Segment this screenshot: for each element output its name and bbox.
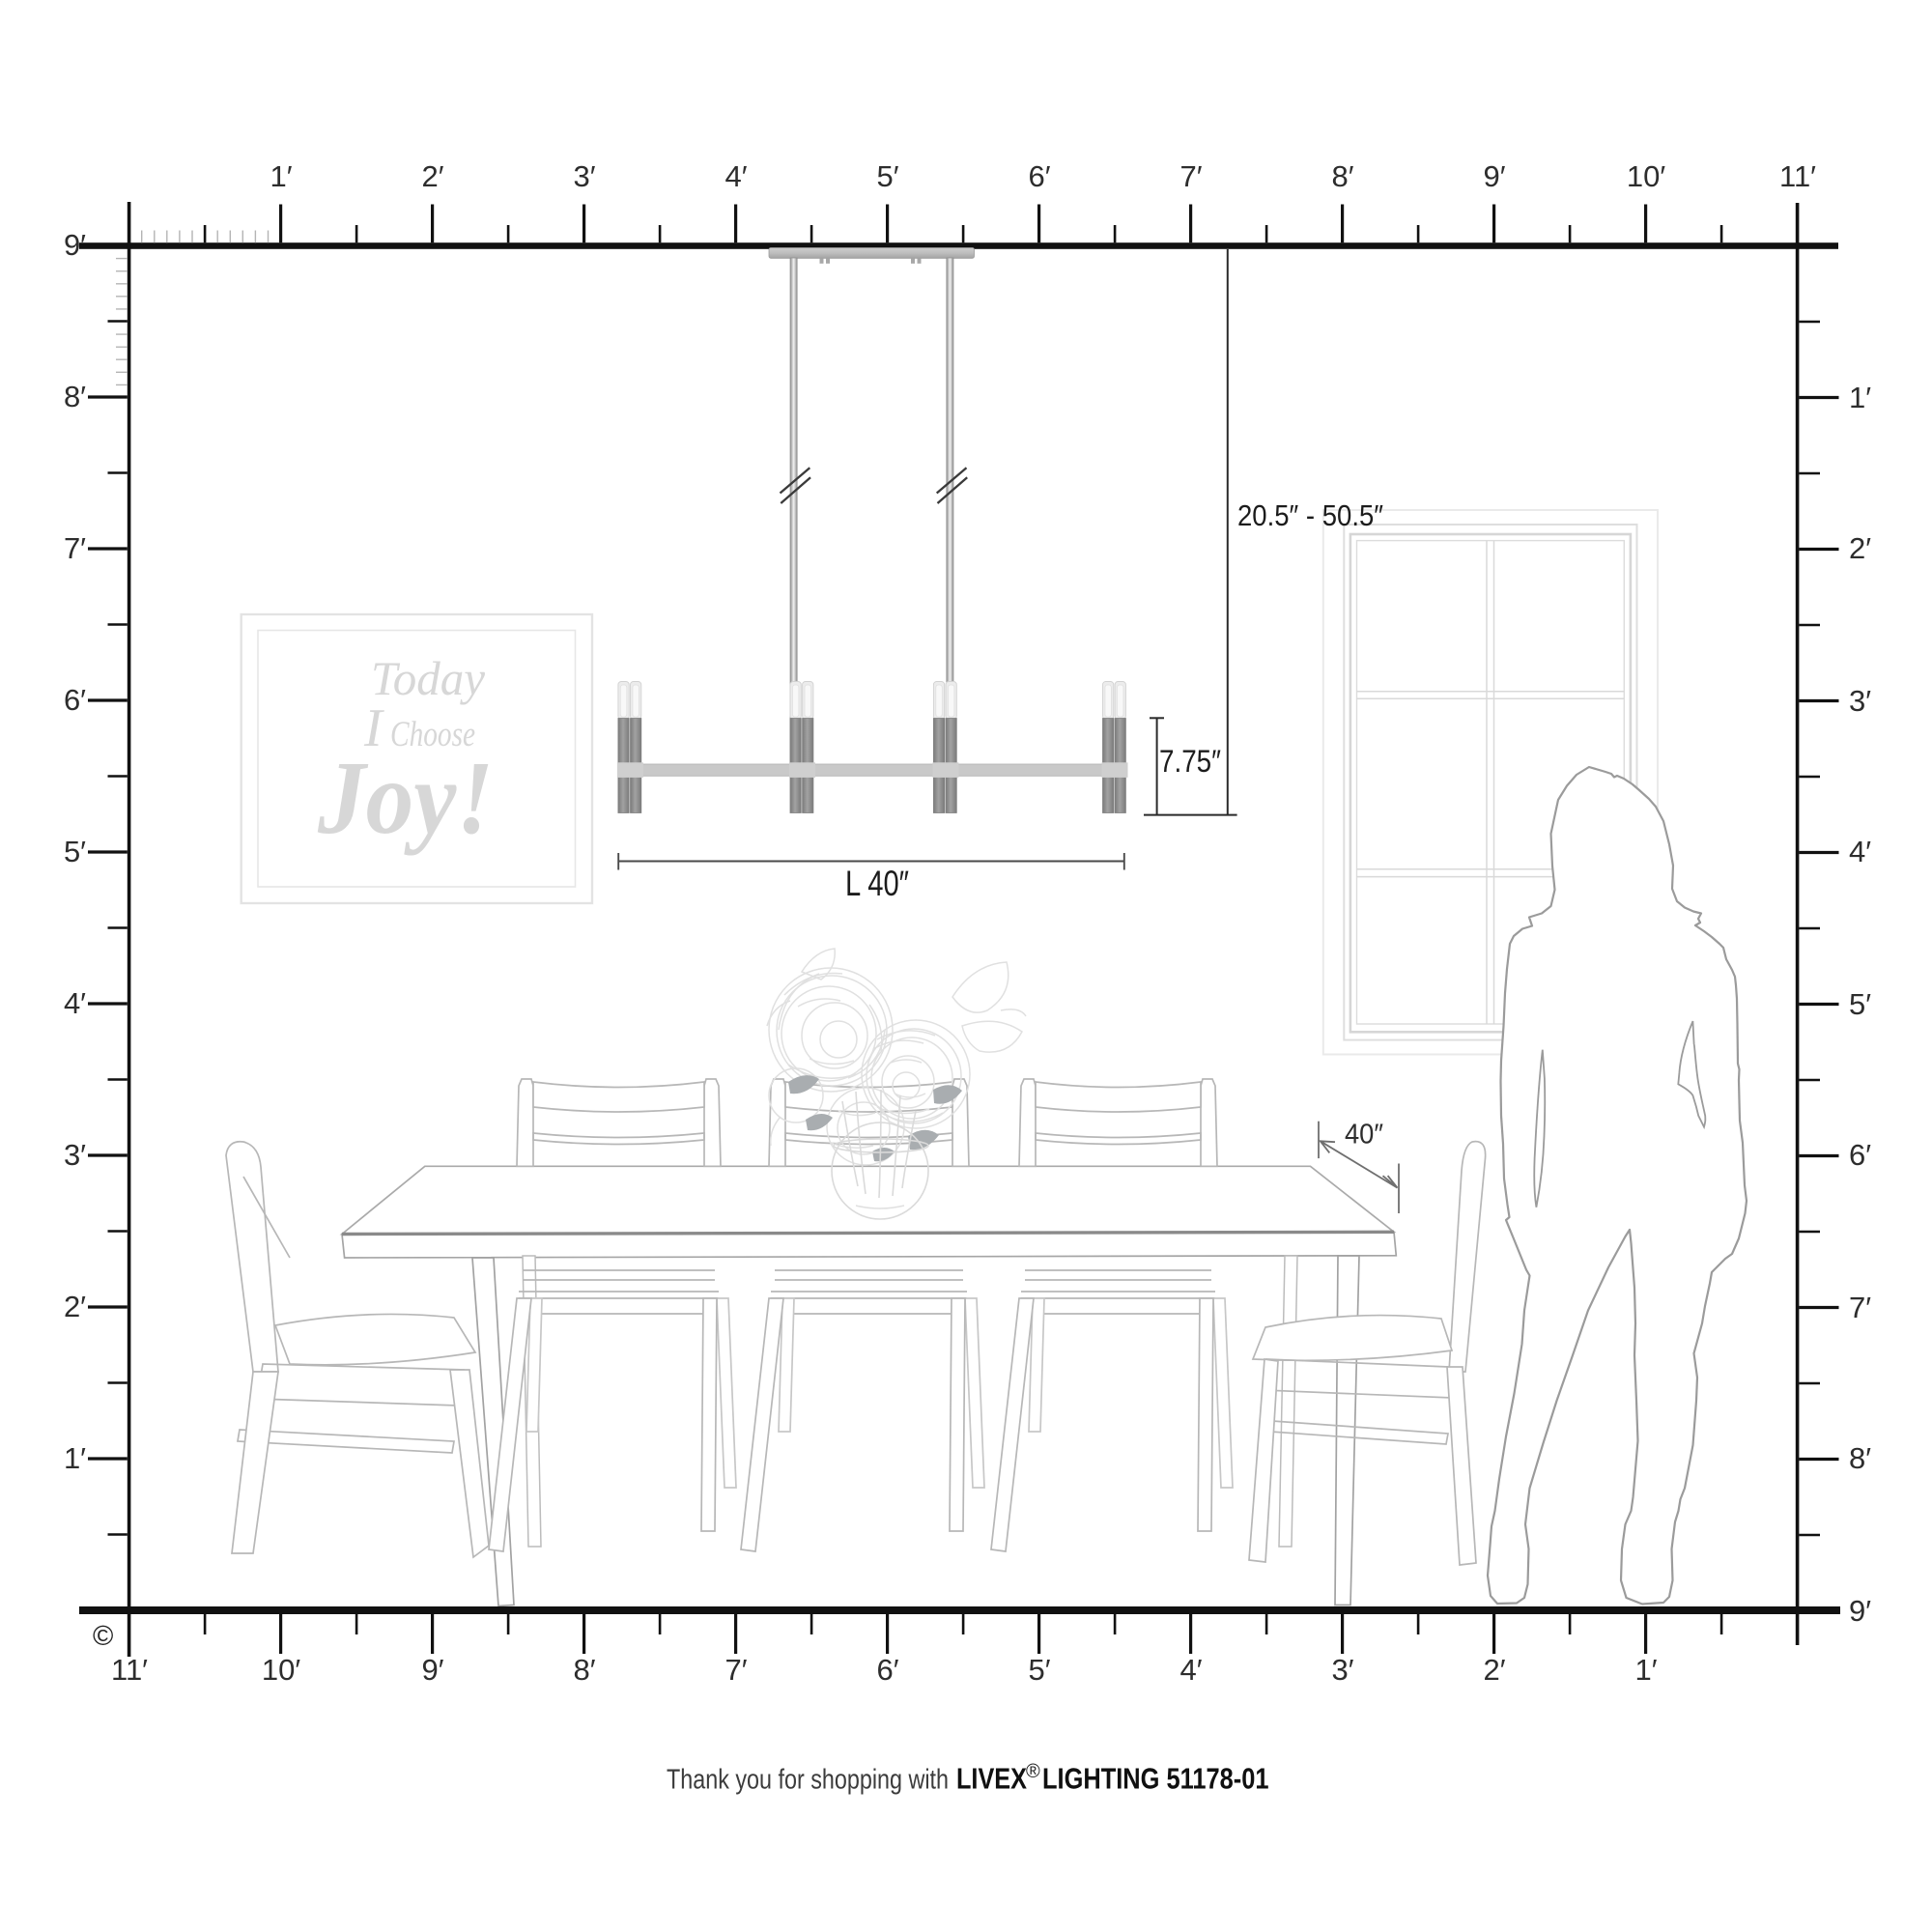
svg-text:40″: 40″: [1345, 1120, 1383, 1151]
svg-text:9′: 9′: [1849, 1594, 1871, 1628]
svg-text:5′: 5′: [64, 835, 86, 868]
svg-text:9′: 9′: [1483, 159, 1505, 193]
svg-text:4′: 4′: [724, 159, 747, 193]
svg-text:8′: 8′: [573, 1653, 595, 1687]
svg-text:7′: 7′: [724, 1653, 747, 1687]
svg-text:8′: 8′: [1849, 1441, 1871, 1475]
svg-text:6′: 6′: [1028, 159, 1050, 193]
svg-text:7′: 7′: [1179, 159, 1202, 193]
svg-text:Today: Today: [371, 651, 486, 705]
svg-text:5′: 5′: [1849, 987, 1871, 1021]
svg-text:10′: 10′: [1627, 159, 1665, 193]
svg-text:7′: 7′: [64, 531, 86, 565]
svg-text:2′: 2′: [421, 159, 443, 193]
svg-text:10′: 10′: [262, 1653, 300, 1687]
svg-text:6′: 6′: [1849, 1138, 1871, 1172]
svg-text:5′: 5′: [876, 159, 898, 193]
svg-text:20.5″ - 50.5″: 20.5″ - 50.5″: [1237, 498, 1383, 532]
svg-text:8′: 8′: [1331, 159, 1353, 193]
svg-text:Thank you for shopping with: Thank you for shopping with: [667, 1765, 949, 1796]
svg-text:8′: 8′: [64, 380, 86, 413]
svg-text:7.75″: 7.75″: [1159, 744, 1221, 779]
svg-text:5′: 5′: [1028, 1653, 1050, 1687]
svg-text:2′: 2′: [1483, 1653, 1505, 1687]
svg-text:3′: 3′: [573, 159, 595, 193]
svg-text:1′: 1′: [64, 1441, 86, 1475]
svg-text:4′: 4′: [1849, 835, 1871, 868]
svg-text:4′: 4′: [64, 986, 86, 1020]
svg-text:3′: 3′: [1331, 1653, 1353, 1687]
svg-text:11′: 11′: [1779, 159, 1816, 193]
svg-text:9′: 9′: [421, 1653, 443, 1687]
svg-text:4′: 4′: [1179, 1653, 1202, 1687]
svg-text:6′: 6′: [876, 1653, 898, 1687]
svg-text:®: ®: [1026, 1761, 1040, 1782]
svg-text:1′: 1′: [1634, 1653, 1657, 1687]
svg-text:1′: 1′: [270, 159, 292, 193]
svg-text:9′: 9′: [64, 228, 86, 262]
svg-text:LIVEX: LIVEX: [956, 1763, 1028, 1796]
svg-text:11′: 11′: [111, 1653, 148, 1687]
svg-text:6′: 6′: [64, 683, 86, 717]
svg-text:3′: 3′: [1849, 684, 1871, 718]
svg-text:LIGHTING 51178-01: LIGHTING 51178-01: [1042, 1763, 1269, 1796]
svg-text:3′: 3′: [64, 1138, 86, 1172]
svg-text:©: ©: [93, 1621, 113, 1652]
svg-text:1′: 1′: [1849, 381, 1871, 414]
svg-text:2′: 2′: [1849, 531, 1871, 565]
svg-text:L 40″: L 40″: [845, 864, 909, 903]
svg-text:7′: 7′: [1849, 1291, 1871, 1324]
svg-text:2′: 2′: [64, 1290, 86, 1323]
svg-text:Joy!: Joy!: [317, 741, 494, 856]
